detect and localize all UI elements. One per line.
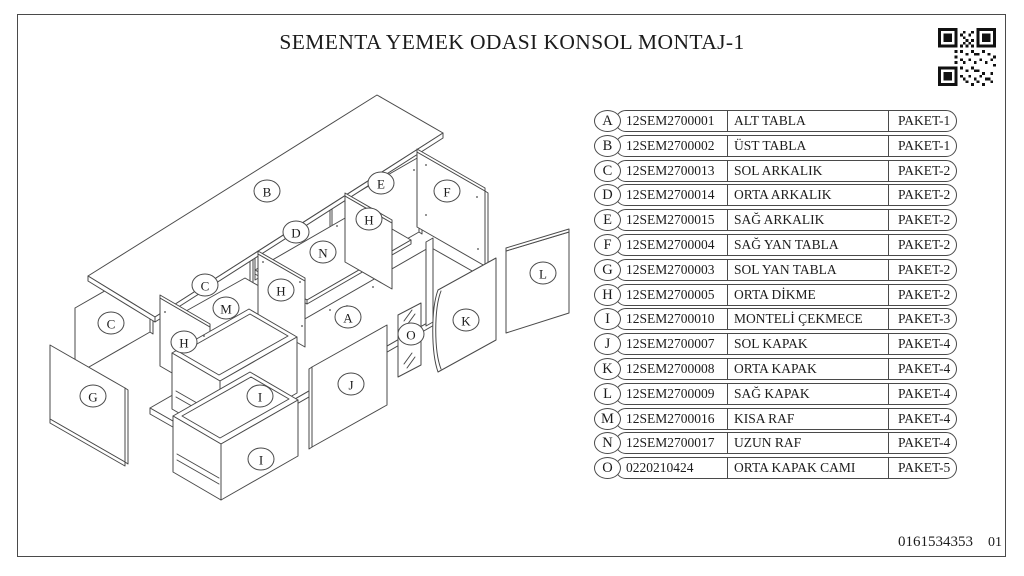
part-name: SAĞ YAN TABLA — [727, 235, 888, 255]
page-number: 01 — [988, 535, 1002, 550]
part-label-n: N — [310, 241, 336, 263]
part-name: ORTA DİKME — [727, 285, 888, 305]
svg-text:M: M — [220, 302, 232, 317]
package-cell: PAKET-2 — [888, 260, 956, 280]
part-name: SOL ARKALIK — [727, 161, 888, 181]
table-row: J 12SEM2700007SOL KAPAKPAKET-4 — [594, 333, 957, 355]
svg-text:F: F — [443, 185, 450, 200]
package-cell: PAKET-1 — [888, 136, 956, 156]
part-name: ALT TABLA — [727, 111, 888, 131]
part-label-i2: I — [248, 448, 274, 470]
package-cell: PAKET-3 — [888, 309, 956, 329]
letter-badge: K — [594, 358, 621, 380]
table-row: B 12SEM2700002ÜST TABLAPAKET-1 — [594, 135, 957, 157]
part-name: ORTA ARKALIK — [727, 185, 888, 205]
table-row: H 12SEM2700005ORTA DİKMEPAKET-2 — [594, 284, 957, 306]
part-code: 12SEM2700005 — [616, 285, 727, 305]
table-row: C 12SEM2700013SOL ARKALIKPAKET-2 — [594, 160, 957, 182]
svg-text:B: B — [263, 185, 272, 200]
interior-edge — [426, 238, 433, 326]
part-code: 12SEM2700002 — [616, 136, 727, 156]
part-name: ÜST TABLA — [727, 136, 888, 156]
document-number: 0161534353 — [898, 534, 973, 550]
part-code: 12SEM2700015 — [616, 210, 727, 230]
part-label-h2: H — [268, 279, 294, 301]
package-cell: PAKET-2 — [888, 285, 956, 305]
part-label-d: D — [283, 221, 309, 243]
part-code: 12SEM2700008 — [616, 359, 727, 379]
part-code: 12SEM2700004 — [616, 235, 727, 255]
package-cell: PAKET-2 — [888, 210, 956, 230]
table-row: M 12SEM2700016KISA RAFPAKET-4 — [594, 408, 957, 430]
letter-badge: F — [594, 234, 621, 256]
svg-text:N: N — [318, 246, 328, 261]
table-row: K 12SEM2700008ORTA KAPAKPAKET-4 — [594, 358, 957, 380]
part-label-l: L — [530, 262, 556, 284]
letter-badge: D — [594, 184, 621, 206]
part-label-m: M — [213, 297, 239, 319]
part-name: SOL KAPAK — [727, 334, 888, 354]
part-name: SAĞ KAPAK — [727, 384, 888, 404]
svg-text:I: I — [259, 453, 263, 468]
parts-table: A 12SEM2700001ALT TABLAPAKET-1 B 12SEM27… — [594, 110, 957, 482]
part-code: 12SEM2700013 — [616, 161, 727, 181]
part-label-k: K — [453, 309, 479, 331]
part-code: 12SEM2700001 — [616, 111, 727, 131]
table-row: F 12SEM2700004SAĞ YAN TABLAPAKET-2 — [594, 234, 957, 256]
package-cell: PAKET-2 — [888, 161, 956, 181]
letter-badge: E — [594, 209, 621, 231]
table-row: D 12SEM2700014ORTA ARKALIKPAKET-2 — [594, 184, 957, 206]
part-code: 12SEM2700009 — [616, 384, 727, 404]
part-code: 12SEM2700017 — [616, 433, 727, 453]
letter-badge: L — [594, 383, 621, 405]
part-label-g: G — [80, 385, 106, 407]
part-name: KISA RAF — [727, 409, 888, 429]
svg-text:C: C — [201, 279, 210, 294]
package-cell: PAKET-2 — [888, 185, 956, 205]
part-label-i1: I — [247, 385, 273, 407]
letter-badge: H — [594, 284, 621, 306]
svg-text:H: H — [364, 213, 373, 228]
letter-badge: B — [594, 135, 621, 157]
svg-text:O: O — [406, 328, 415, 343]
letter-badge: C — [594, 160, 621, 182]
part-code: 12SEM2700007 — [616, 334, 727, 354]
part-name: ORTA KAPAK — [727, 359, 888, 379]
table-row: O 0220210424ORTA KAPAK CAMIPAKET-5 — [594, 457, 957, 479]
table-row: A 12SEM2700001ALT TABLAPAKET-1 — [594, 110, 957, 132]
table-row: L 12SEM2700009SAĞ KAPAKPAKET-4 — [594, 383, 957, 405]
part-label-f: F — [434, 180, 460, 202]
part-code: 12SEM2700016 — [616, 409, 727, 429]
svg-text:E: E — [377, 177, 385, 192]
table-row: N 12SEM2700017UZUN RAFPAKET-4 — [594, 432, 957, 454]
part-code: 12SEM2700014 — [616, 185, 727, 205]
part-name: SAĞ ARKALIK — [727, 210, 888, 230]
letter-badge: A — [594, 110, 621, 132]
part-name: UZUN RAF — [727, 433, 888, 453]
document-number-area: 016153435301 — [898, 534, 1002, 551]
part-label-a: A — [335, 306, 361, 328]
svg-text:D: D — [291, 226, 300, 241]
letter-badge: I — [594, 308, 621, 330]
part-code: 12SEM2700003 — [616, 260, 727, 280]
letter-badge: G — [594, 259, 621, 281]
part-label-e: E — [368, 172, 394, 194]
svg-text:G: G — [88, 390, 97, 405]
package-cell: PAKET-5 — [888, 458, 956, 478]
part-label-o: O — [398, 323, 424, 345]
package-cell: PAKET-4 — [888, 384, 956, 404]
svg-text:J: J — [348, 378, 353, 393]
letter-badge: O — [594, 457, 621, 479]
letter-badge: M — [594, 408, 621, 430]
part-code: 0220210424 — [616, 458, 727, 478]
svg-text:H: H — [276, 284, 285, 299]
letter-badge: J — [594, 333, 621, 355]
package-cell: PAKET-4 — [888, 334, 956, 354]
part-label-c2: C — [98, 312, 124, 334]
table-row: I 12SEM2700010MONTELİ ÇEKMECEPAKET-3 — [594, 308, 957, 330]
table-row: E 12SEM2700015SAĞ ARKALIKPAKET-2 — [594, 209, 957, 231]
part-label-c1: C — [192, 274, 218, 296]
package-cell: PAKET-1 — [888, 111, 956, 131]
package-cell: PAKET-4 — [888, 409, 956, 429]
package-cell: PAKET-4 — [888, 359, 956, 379]
svg-text:L: L — [539, 267, 547, 282]
svg-text:C: C — [107, 317, 116, 332]
assembly-sheet: SEMENTA YEMEK ODASI KONSOL MONTAJ-1 — [0, 0, 1024, 576]
part-label-h3: H — [171, 331, 197, 353]
part-label-h1: H — [356, 208, 382, 230]
letter-badge: N — [594, 432, 621, 454]
svg-text:A: A — [343, 311, 353, 326]
part-label-b: B — [254, 180, 280, 202]
table-row: G 12SEM2700003SOL YAN TABLAPAKET-2 — [594, 259, 957, 281]
svg-text:K: K — [461, 314, 471, 329]
package-cell: PAKET-2 — [888, 235, 956, 255]
package-cell: PAKET-4 — [888, 433, 956, 453]
part-name: ORTA KAPAK CAMI — [727, 458, 888, 478]
part-label-j: J — [338, 373, 364, 395]
part-code: 12SEM2700010 — [616, 309, 727, 329]
svg-text:H: H — [179, 336, 188, 351]
part-name: SOL YAN TABLA — [727, 260, 888, 280]
part-name: MONTELİ ÇEKMECE — [727, 309, 888, 329]
svg-text:I: I — [258, 390, 262, 405]
